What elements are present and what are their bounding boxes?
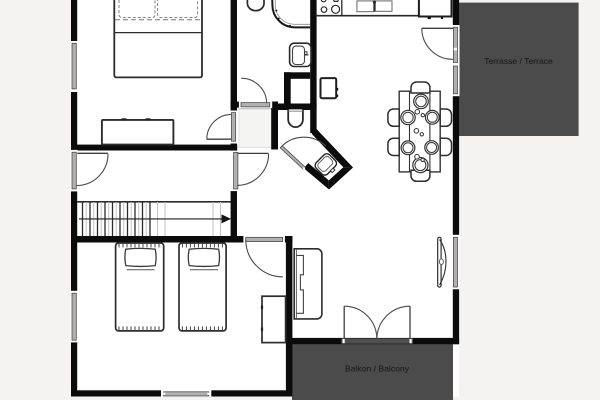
svg-text:Balkon / Balcony: Balkon / Balcony xyxy=(345,364,410,374)
svg-text:Terrasse / Terrace: Terrasse / Terrace xyxy=(484,56,553,66)
